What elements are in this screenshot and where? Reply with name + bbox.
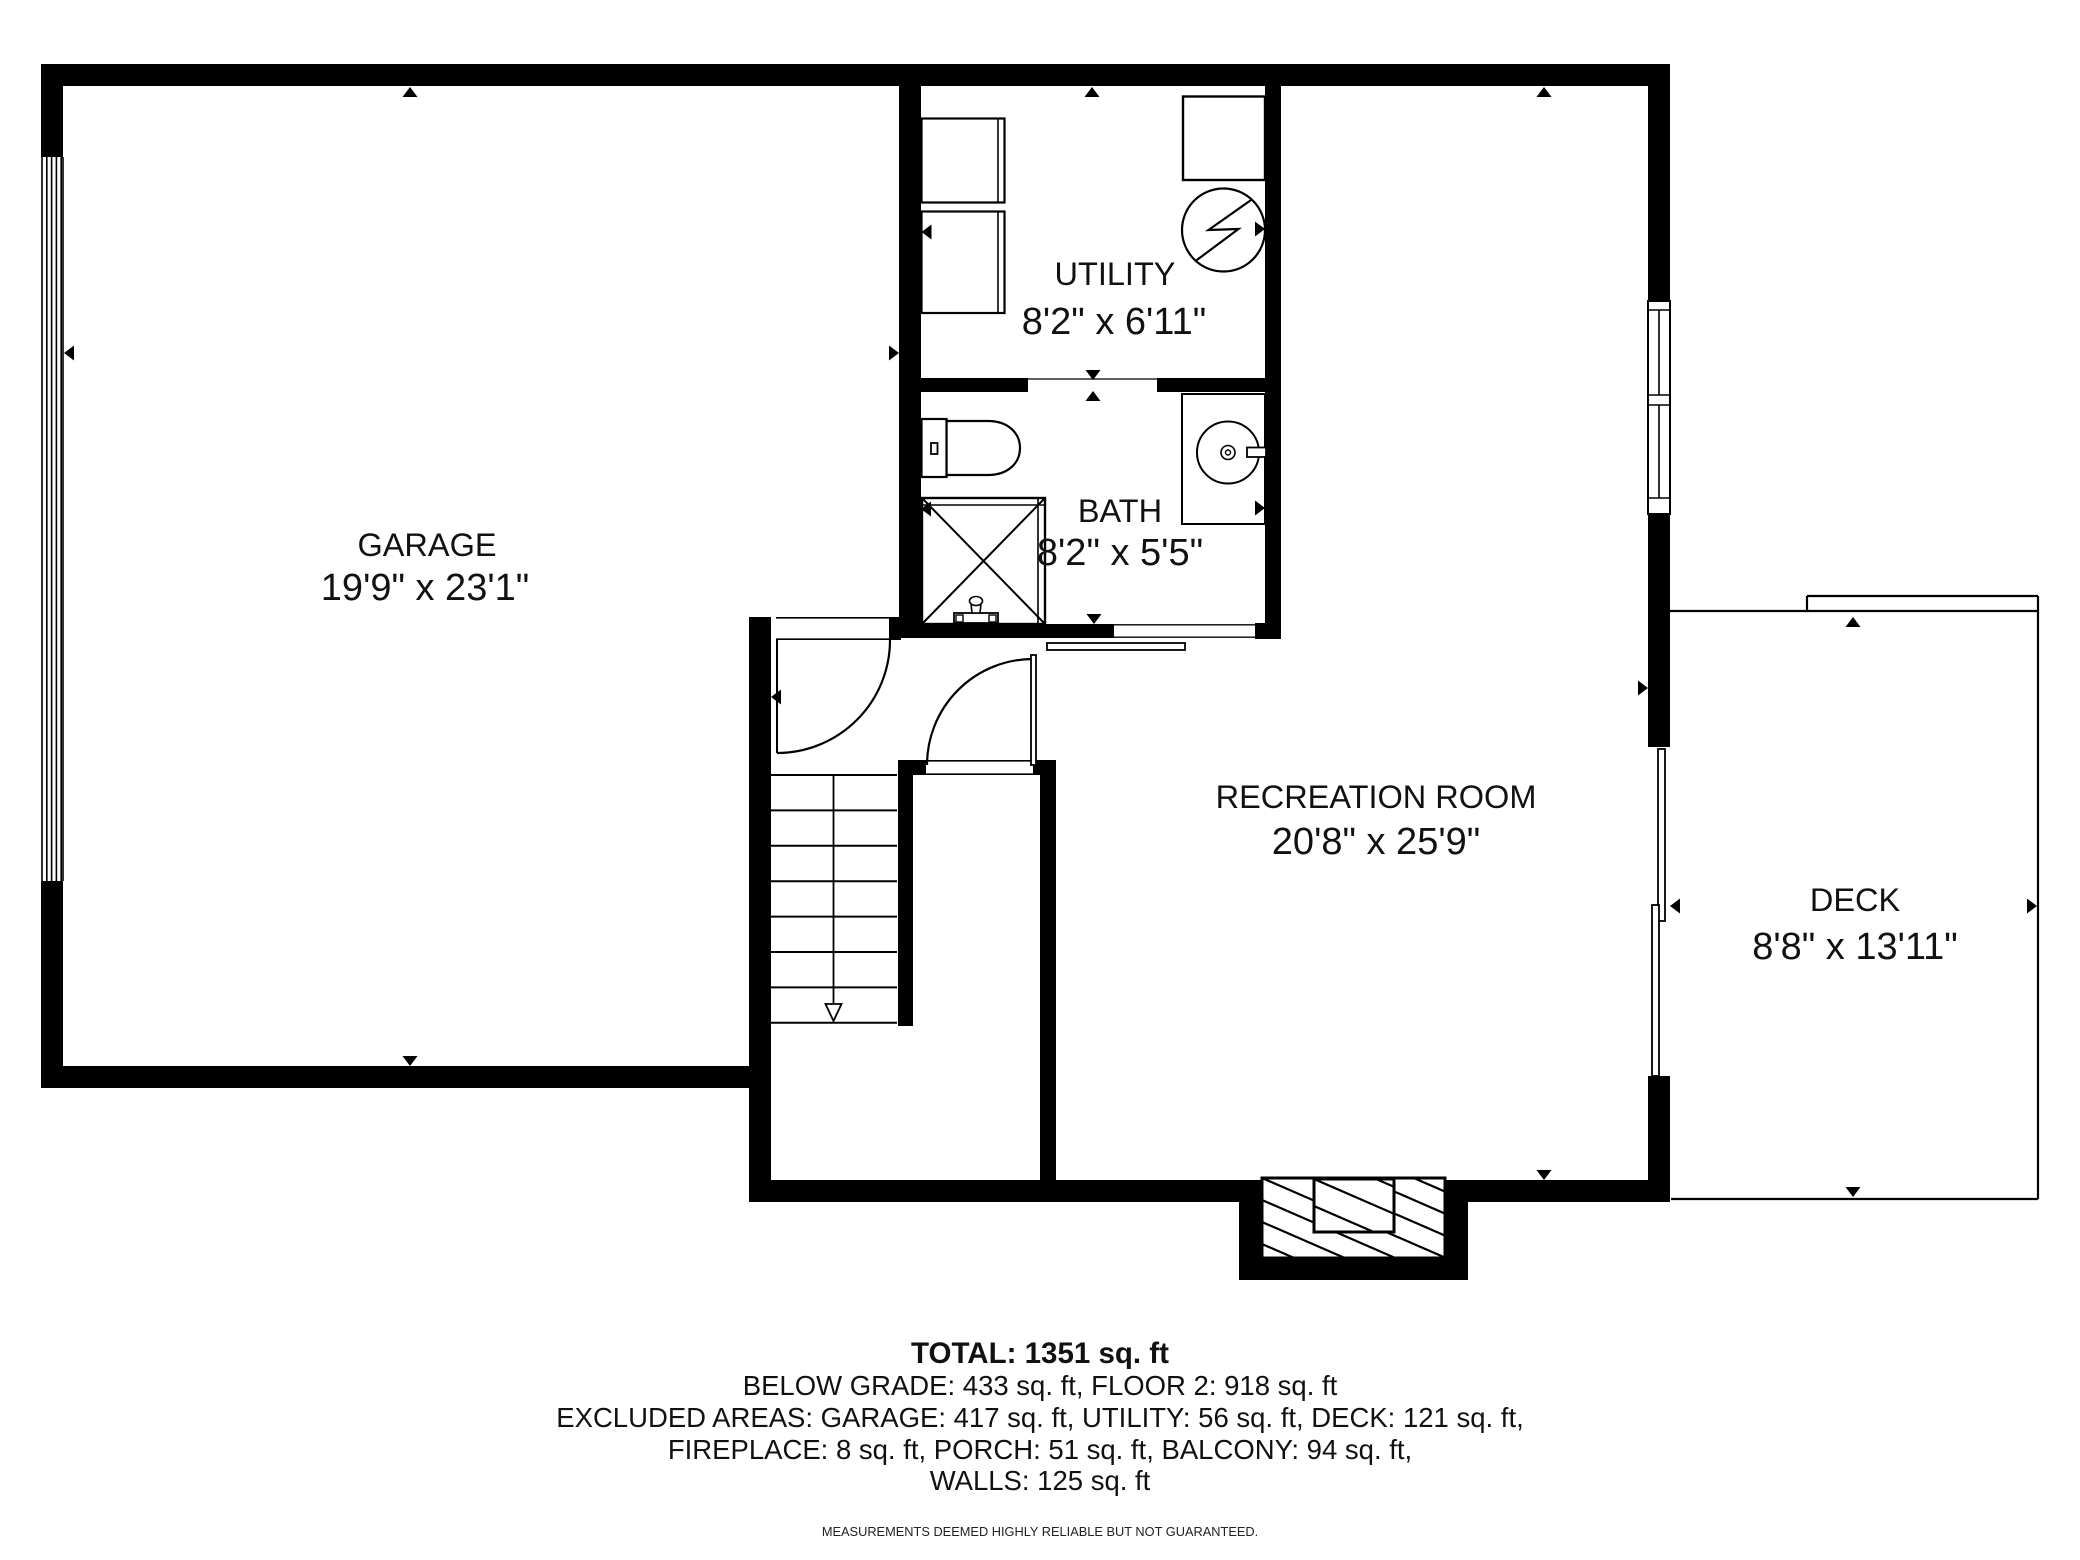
svg-text:UTILITY: UTILITY [1055,256,1176,292]
svg-text:WALLS: 125 sq. ft: WALLS: 125 sq. ft [930,1465,1151,1496]
svg-text:EXCLUDED AREAS: GARAGE: 417 sq: EXCLUDED AREAS: GARAGE: 417 sq. ft, UTIL… [556,1402,1523,1433]
svg-text:GARAGE: GARAGE [357,527,496,563]
svg-text:DECK: DECK [1810,882,1901,918]
svg-text:RECREATION ROOM: RECREATION ROOM [1216,779,1537,815]
svg-text:20'8" x 25'9": 20'8" x 25'9" [1272,821,1480,863]
svg-text:8'8" x 13'11": 8'8" x 13'11" [1752,926,1958,968]
svg-text:MEASUREMENTS DEEMED HIGHLY REL: MEASUREMENTS DEEMED HIGHLY RELIABLE BUT … [822,1524,1258,1539]
svg-text:8'2" x 5'5": 8'2" x 5'5" [1037,532,1203,574]
svg-text:19'9" x 23'1": 19'9" x 23'1" [321,567,529,609]
svg-text:8'2" x 6'11": 8'2" x 6'11" [1022,301,1206,343]
svg-text:TOTAL: 1351 sq. ft: TOTAL: 1351 sq. ft [911,1337,1169,1370]
svg-text:BATH: BATH [1078,493,1162,529]
svg-text:FIREPLACE: 8 sq. ft, PORCH: 51: FIREPLACE: 8 sq. ft, PORCH: 51 sq. ft, B… [668,1434,1412,1465]
svg-text:BELOW GRADE: 433 sq. ft, FLOOR: BELOW GRADE: 433 sq. ft, FLOOR 2: 918 sq… [743,1370,1338,1401]
